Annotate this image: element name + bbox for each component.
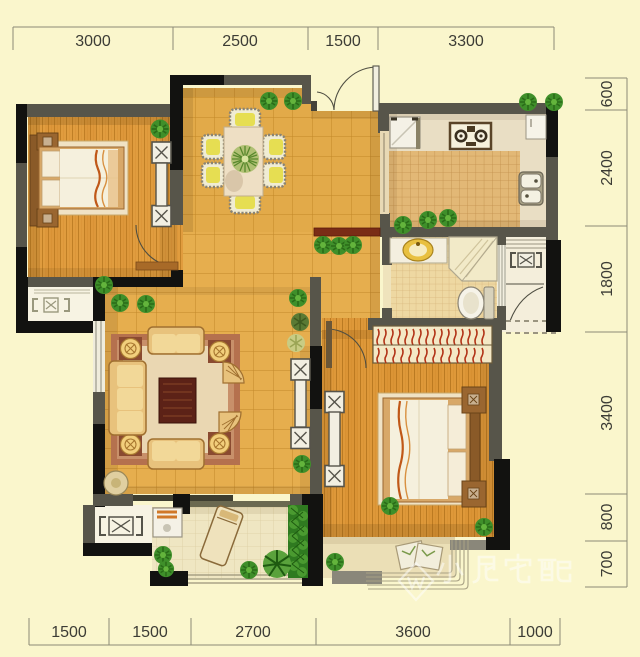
svg-text:2500: 2500: [222, 33, 258, 50]
svg-text:600: 600: [599, 81, 616, 108]
svg-text:1500: 1500: [325, 33, 361, 50]
svg-text:1500: 1500: [132, 624, 168, 641]
svg-text:800: 800: [599, 504, 616, 531]
svg-text:700: 700: [599, 551, 616, 578]
svg-text:3400: 3400: [599, 395, 616, 431]
svg-text:1500: 1500: [51, 624, 87, 641]
svg-text:1000: 1000: [517, 624, 553, 641]
svg-text:2700: 2700: [235, 624, 271, 641]
svg-text:3600: 3600: [395, 624, 431, 641]
svg-text:2400: 2400: [599, 150, 616, 186]
svg-text:3300: 3300: [448, 33, 484, 50]
svg-text:1800: 1800: [599, 261, 616, 297]
svg-text:3000: 3000: [75, 33, 111, 50]
